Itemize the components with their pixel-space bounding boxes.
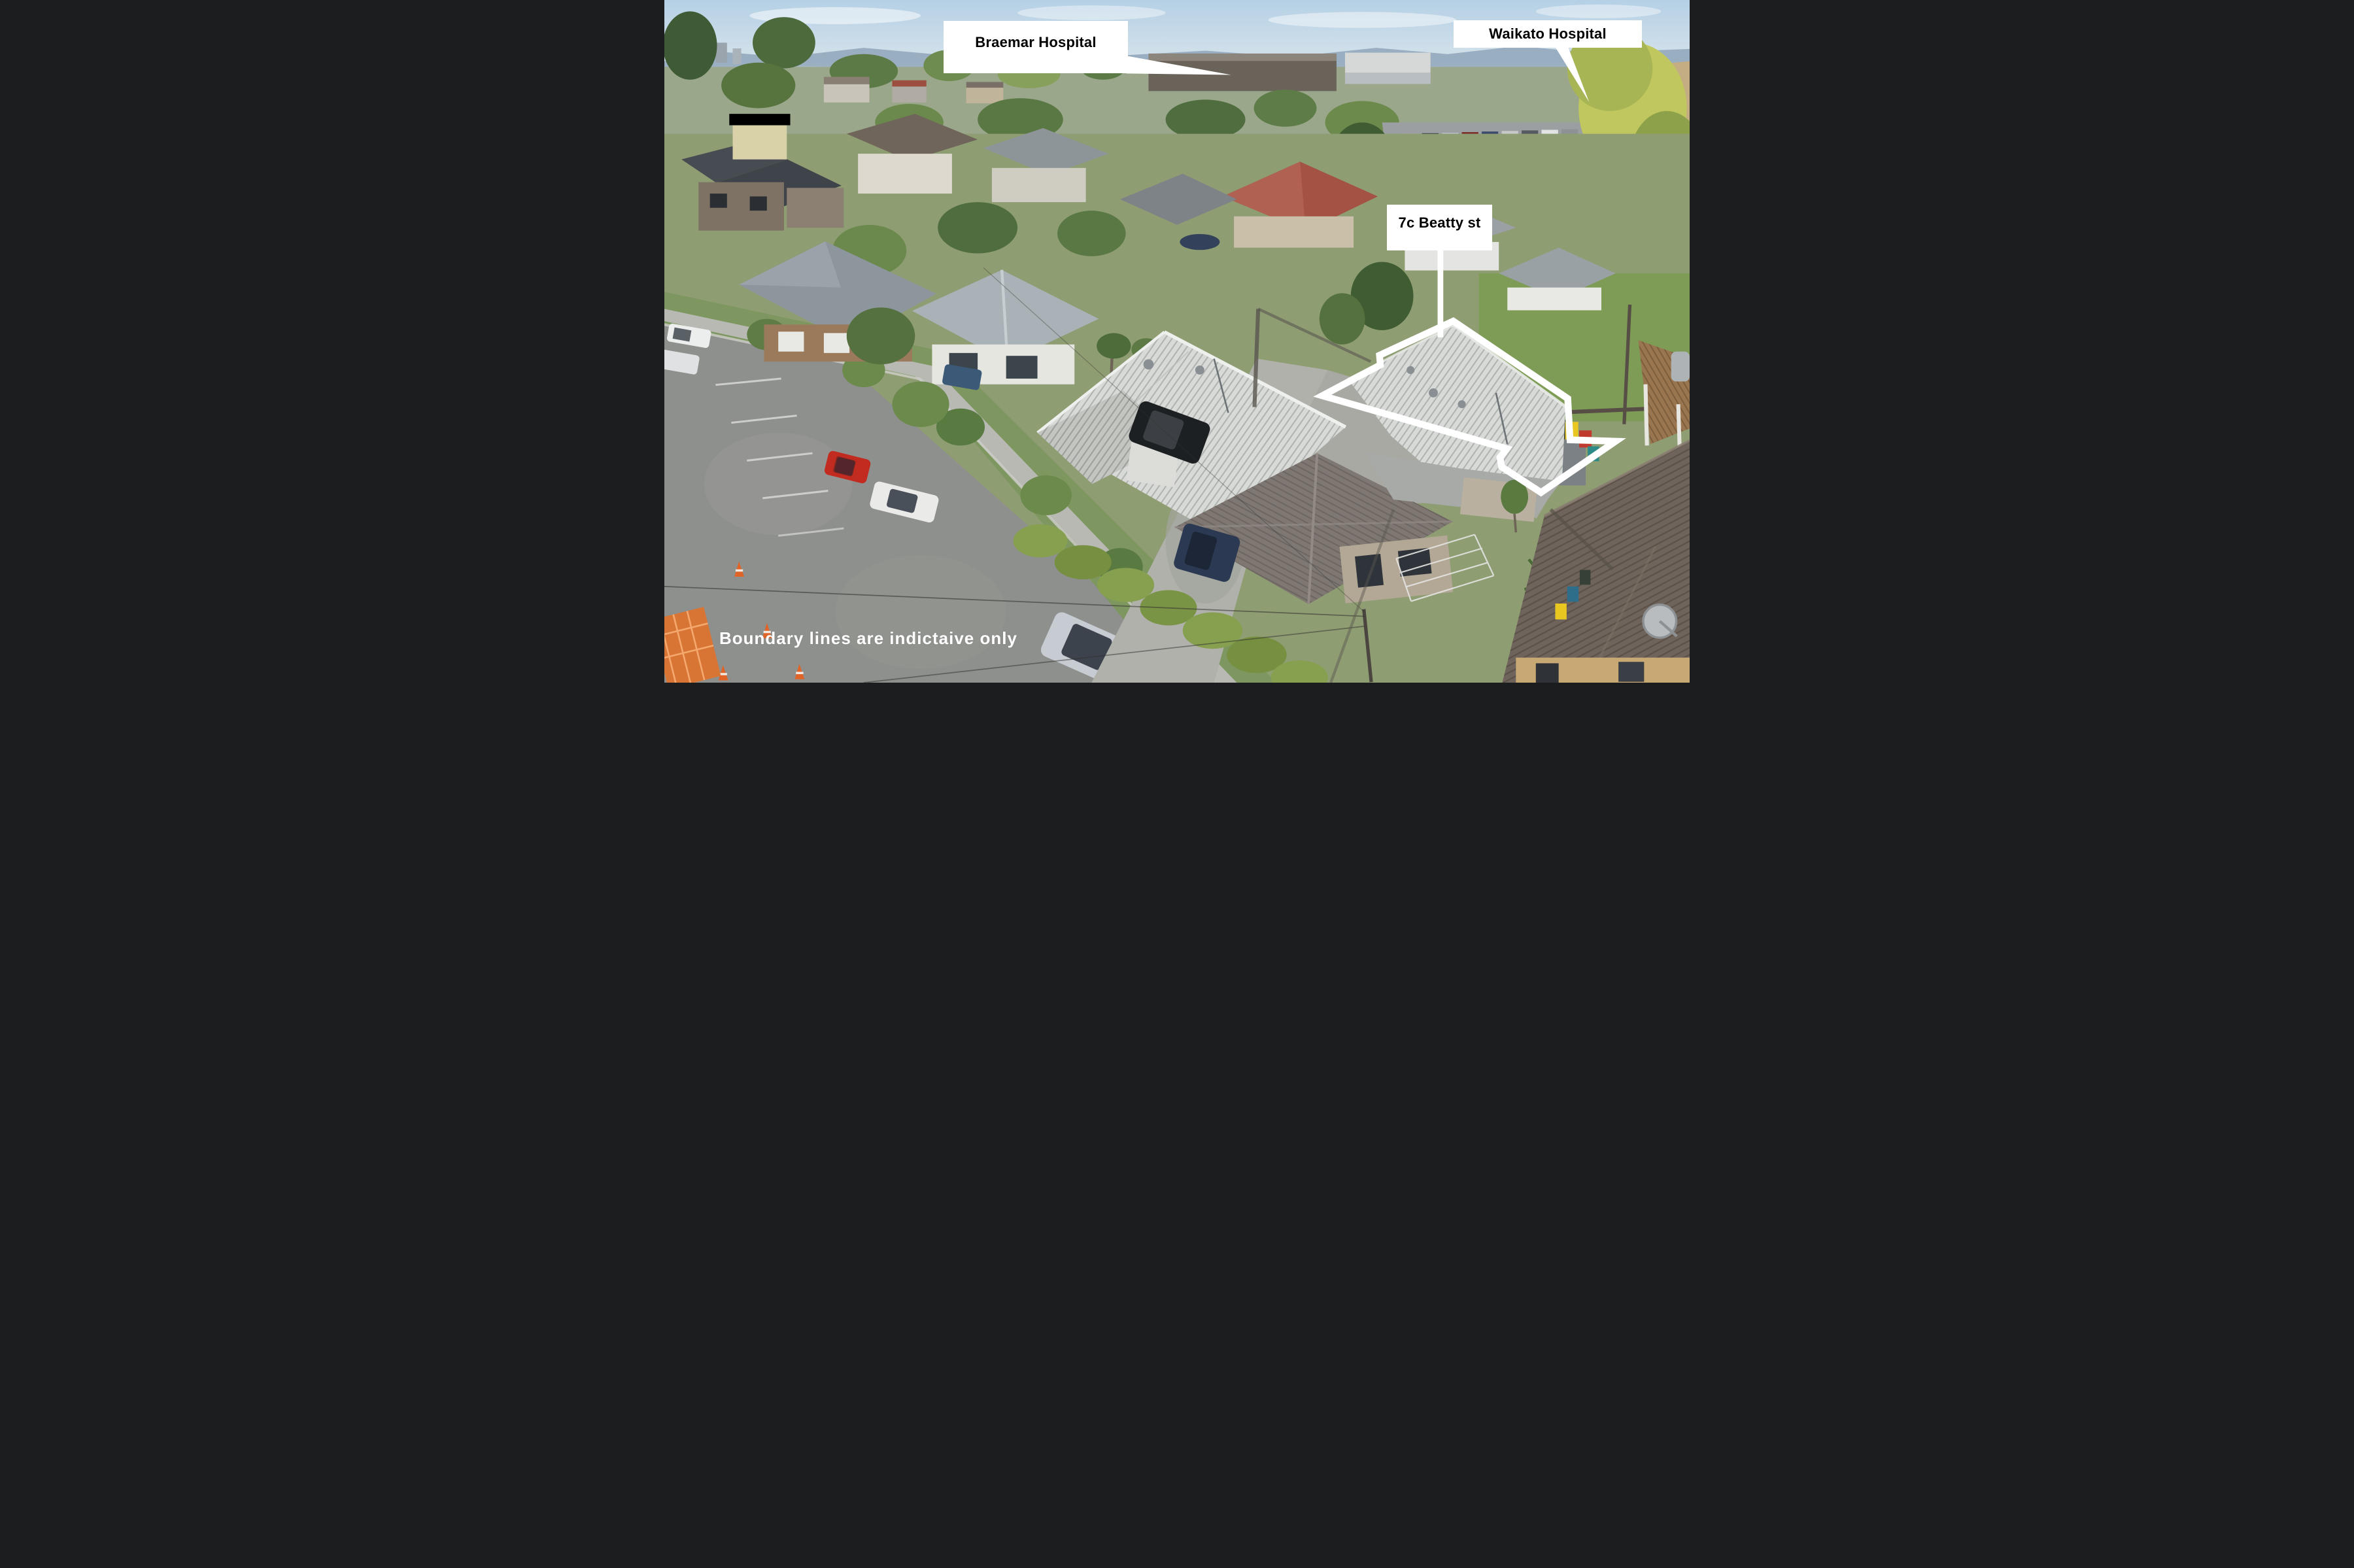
aerial-listing-image: Braemar Hospital Waikato Hospital 7c Bea… [664, 0, 1690, 683]
braemar-hospital-label-text: Braemar Hospital [975, 34, 1096, 51]
boundary-disclaimer-text: Boundary lines are indictaive only [719, 628, 1017, 649]
annotation-overlay [664, 0, 1690, 683]
property-address-label: 7c Beatty st [1387, 205, 1492, 250]
waikato-hospital-label: Waikato Hospital [1454, 20, 1642, 48]
braemar-pointer-line [1126, 56, 1231, 75]
property-address-label-text: 7c Beatty st [1399, 214, 1481, 231]
waikato-pointer-line [1555, 46, 1590, 102]
boundary-outline [1322, 321, 1616, 492]
waikato-hospital-label-text: Waikato Hospital [1489, 26, 1607, 43]
braemar-hospital-label: Braemar Hospital [944, 21, 1128, 73]
